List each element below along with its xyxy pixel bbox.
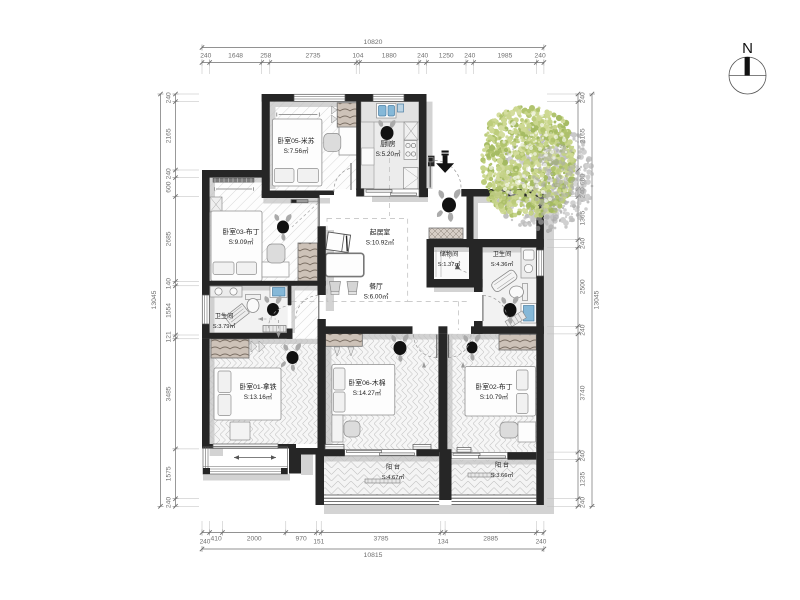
svg-text:2735: 2735 <box>306 53 321 60</box>
svg-text:13045: 13045 <box>594 290 601 309</box>
svg-text:3785: 3785 <box>374 536 389 543</box>
svg-text:1554: 1554 <box>166 303 173 318</box>
svg-text:储物间: 储物间 <box>440 250 459 258</box>
svg-text:970: 970 <box>296 536 307 543</box>
svg-text:S:13.16㎡: S:13.16㎡ <box>244 392 273 401</box>
svg-text:卧室01-拿铁: 卧室01-拿铁 <box>239 382 276 391</box>
svg-text:10815: 10815 <box>364 552 383 559</box>
svg-text:S:7.56㎡: S:7.56㎡ <box>284 146 309 155</box>
svg-text:阳 台: 阳 台 <box>495 461 509 469</box>
svg-text:2500: 2500 <box>580 279 587 294</box>
svg-text:410: 410 <box>211 536 222 543</box>
svg-text:13045: 13045 <box>151 290 158 309</box>
svg-text:240: 240 <box>536 539 547 546</box>
svg-text:240: 240 <box>535 53 546 60</box>
svg-text:240: 240 <box>200 53 211 60</box>
svg-text:S:10.79㎡: S:10.79㎡ <box>480 392 509 401</box>
svg-text:258: 258 <box>260 53 271 60</box>
svg-text:10820: 10820 <box>364 39 383 46</box>
svg-text:S:10.92㎡: S:10.92㎡ <box>366 238 395 247</box>
svg-text:2000: 2000 <box>247 536 262 543</box>
svg-text:240: 240 <box>580 324 587 335</box>
svg-text:卧室02-布丁: 卧室02-布丁 <box>475 382 512 391</box>
svg-text:1880: 1880 <box>382 53 397 60</box>
svg-text:121: 121 <box>166 331 173 342</box>
svg-text:240: 240 <box>166 168 173 179</box>
svg-text:104: 104 <box>352 53 363 60</box>
svg-text:S:4.67㎡: S:4.67㎡ <box>382 473 405 481</box>
svg-text:240: 240 <box>580 238 587 249</box>
svg-text:240: 240 <box>464 53 475 60</box>
svg-text:1250: 1250 <box>439 53 454 60</box>
svg-text:240: 240 <box>200 539 211 546</box>
svg-text:S:3.79㎡: S:3.79㎡ <box>213 322 236 330</box>
svg-text:151: 151 <box>313 539 324 546</box>
svg-text:S:5.20㎡: S:5.20㎡ <box>376 149 401 158</box>
svg-text:S:1.37㎡: S:1.37㎡ <box>438 260 461 268</box>
svg-text:厨 房: 厨 房 <box>380 139 396 148</box>
svg-text:卧室03-布丁: 卧室03-布丁 <box>222 227 259 236</box>
svg-text:卫生间: 卫生间 <box>215 312 234 320</box>
svg-text:240: 240 <box>166 92 173 103</box>
svg-text:N: N <box>742 40 753 57</box>
svg-text:1985: 1985 <box>497 53 512 60</box>
svg-text:240: 240 <box>580 497 587 508</box>
svg-text:1648: 1648 <box>228 53 243 60</box>
svg-text:3740: 3740 <box>580 385 587 400</box>
svg-text:S:6.00㎡: S:6.00㎡ <box>364 292 389 301</box>
svg-text:1235: 1235 <box>580 471 587 486</box>
svg-text:2685: 2685 <box>166 231 173 246</box>
svg-text:2885: 2885 <box>483 536 498 543</box>
svg-text:240: 240 <box>580 450 587 461</box>
svg-text:起居室: 起居室 <box>370 228 391 237</box>
svg-text:卫生间: 卫生间 <box>493 250 512 258</box>
svg-text:S:4.36㎡: S:4.36㎡ <box>491 260 514 268</box>
svg-text:240: 240 <box>580 92 587 103</box>
svg-text:2165: 2165 <box>166 128 173 143</box>
svg-text:140: 140 <box>166 278 173 289</box>
svg-text:3485: 3485 <box>166 386 173 401</box>
svg-text:卧室05-米苏: 卧室05-米苏 <box>277 136 314 145</box>
svg-text:134: 134 <box>438 539 449 546</box>
svg-text:1575: 1575 <box>166 466 173 481</box>
svg-text:卧室06-木棉: 卧室06-木棉 <box>348 378 385 387</box>
svg-text:阳 台: 阳 台 <box>386 463 400 471</box>
svg-text:S:3.66㎡: S:3.66㎡ <box>491 471 514 479</box>
svg-text:240: 240 <box>166 497 173 508</box>
svg-text:S:14.27㎡: S:14.27㎡ <box>353 388 382 397</box>
svg-text:240: 240 <box>417 53 428 60</box>
svg-text:S:9.09㎡: S:9.09㎡ <box>229 237 254 246</box>
svg-text:餐厅: 餐厅 <box>369 282 383 291</box>
svg-text:600: 600 <box>166 181 173 192</box>
